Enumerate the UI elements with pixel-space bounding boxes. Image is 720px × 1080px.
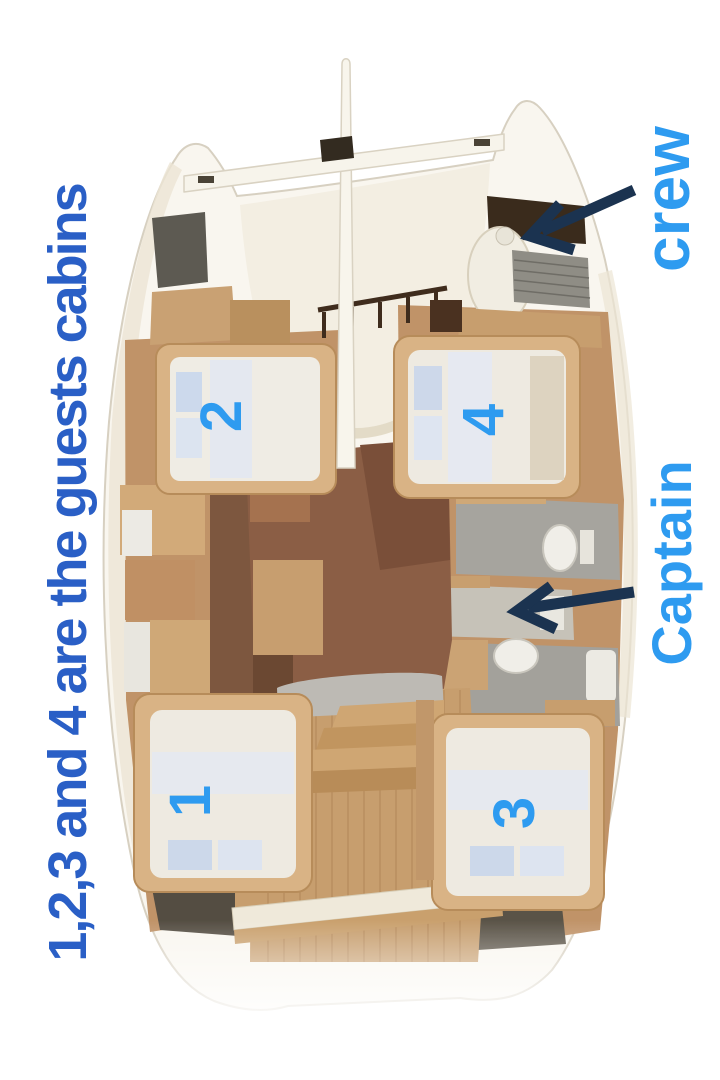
captain-label: Captain bbox=[644, 460, 700, 665]
yacht-layout-diagram: 1,2,3 and 4 are the guests cabins crew C… bbox=[0, 0, 720, 1080]
cabin-4-number-label: 4 bbox=[455, 404, 513, 436]
mast-step-fitting bbox=[320, 136, 354, 162]
cabin-3-pillow-2 bbox=[520, 846, 564, 876]
cabin-4-pillow-1 bbox=[414, 366, 442, 410]
crew-companionway-steps bbox=[512, 250, 590, 308]
left-bow-shelf bbox=[150, 286, 236, 345]
bottom-fade bbox=[90, 920, 630, 1030]
bowsprit-spar bbox=[337, 59, 355, 468]
galley-appliance-1 bbox=[122, 510, 152, 556]
toilet-aft bbox=[494, 639, 538, 673]
beam-fitting-left bbox=[198, 176, 214, 183]
left-bow-window bbox=[152, 212, 208, 288]
crew-winch bbox=[496, 227, 514, 245]
guest-cabins-caption: 1,2,3 and 4 are the guests cabins bbox=[41, 184, 95, 961]
cabin-4-side-cushion bbox=[530, 356, 564, 480]
cabin-1-pillow-1 bbox=[168, 840, 212, 870]
bathroom-forward bbox=[456, 490, 620, 580]
cabin-3-number-label: 3 bbox=[486, 797, 544, 829]
left-upper-cabinet bbox=[230, 300, 290, 344]
toilet-forward-tank bbox=[580, 530, 594, 564]
cabin-2-number-label: 2 bbox=[193, 400, 251, 432]
cabin-1-pillow-2 bbox=[218, 840, 262, 870]
cabin-1-number-label: 1 bbox=[162, 785, 220, 817]
galley-cabinet-2 bbox=[125, 560, 195, 620]
sink-aft bbox=[586, 650, 616, 702]
saloon-table bbox=[253, 560, 323, 655]
cabin-3-shelf bbox=[416, 700, 434, 880]
cabin-3-pillow-1 bbox=[470, 846, 514, 876]
toilet-forward bbox=[543, 525, 577, 571]
bathroom-forward-floor bbox=[456, 496, 620, 580]
cabin-4-pillow-2 bbox=[414, 416, 442, 460]
galley-cabinet-3 bbox=[150, 620, 210, 700]
catamaran-cutaway-illustration bbox=[0, 0, 720, 1080]
crew-label: crew bbox=[635, 126, 699, 272]
saloon-dark-seat bbox=[430, 300, 462, 332]
beam-fitting-right bbox=[474, 139, 490, 146]
